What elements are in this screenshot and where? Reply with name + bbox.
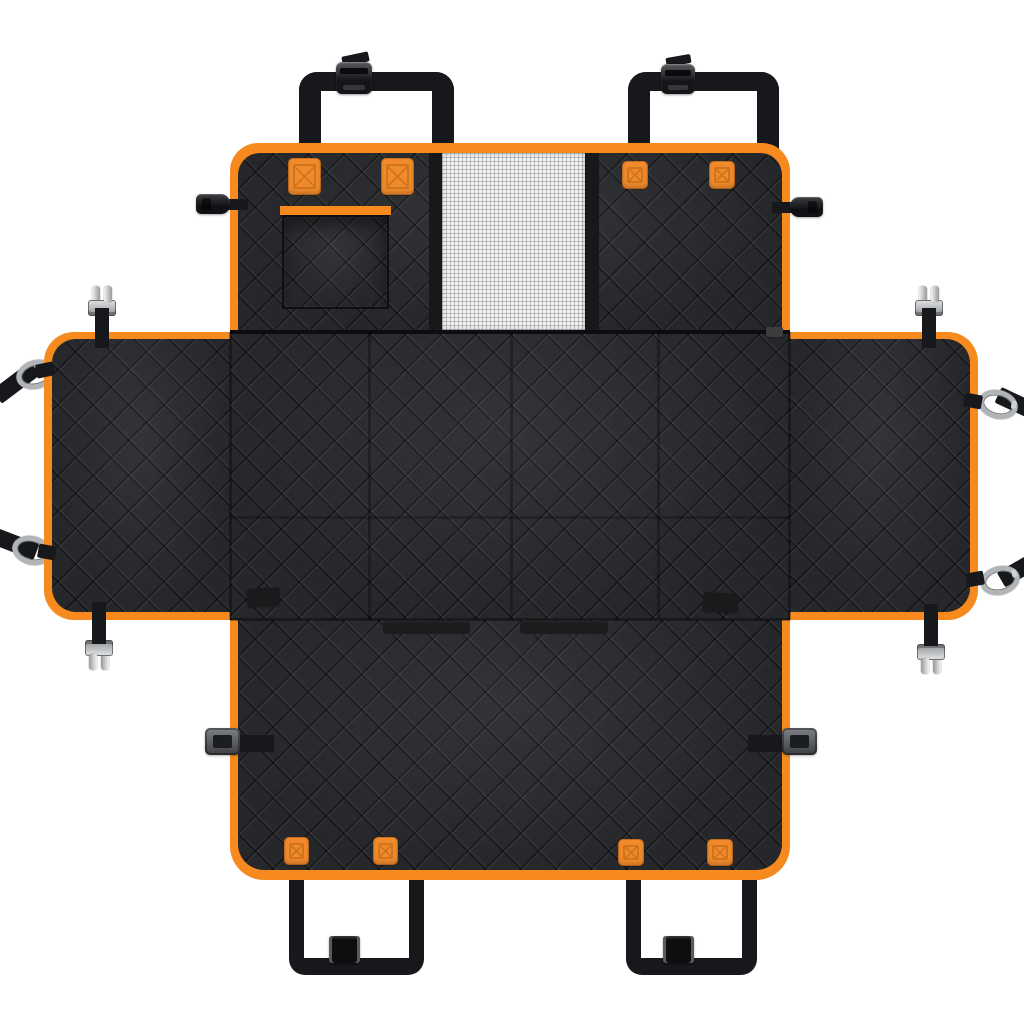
- flap-crease: [229, 332, 232, 620]
- orange-tab: [373, 837, 398, 865]
- zipper-slider: [766, 327, 783, 337]
- clip-strap-right: [748, 735, 786, 752]
- pocket-trim: [280, 206, 391, 215]
- flap-crease: [788, 332, 791, 620]
- front-panel: [230, 620, 790, 880]
- plastic-clip-left: [205, 728, 240, 755]
- orange-tab: [284, 837, 309, 865]
- fold-seam: [510, 332, 513, 620]
- front-panel-fabric: [238, 620, 782, 870]
- side-release-buckle-top-right: [661, 64, 695, 94]
- side-flap-right: [790, 332, 978, 620]
- metal-clip-bottom-right: [917, 644, 945, 674]
- fold-seam: [657, 332, 660, 620]
- velcro-strip: [520, 621, 608, 634]
- metal-clip-bottom-left: [85, 640, 113, 670]
- metal-clip-strap: [92, 602, 106, 644]
- side-release-buckle-edge-right: [790, 197, 823, 217]
- mesh-border-right: [585, 153, 599, 330]
- carabiner-edge-tab: [963, 393, 983, 410]
- metal-clip-base: [917, 644, 945, 660]
- side-flap-left: [44, 332, 230, 620]
- slide-adjuster-bottom-right: [663, 936, 694, 963]
- orange-tab: [381, 158, 414, 195]
- orange-tab: [288, 158, 321, 195]
- orange-tab: [622, 161, 648, 189]
- metal-clip-strap: [922, 308, 936, 348]
- zipper-pull: [771, 337, 779, 344]
- velcro-strip: [383, 621, 470, 634]
- metal-clip-strap: [924, 604, 938, 646]
- clip-strap-left: [236, 735, 274, 752]
- seam-tab: [247, 587, 281, 607]
- fold-seam: [368, 332, 371, 620]
- orange-tab: [707, 839, 733, 866]
- orange-tab: [618, 839, 644, 866]
- product-photo-stage: [0, 0, 1024, 1024]
- seam-tab: [703, 592, 739, 613]
- metal-clip-strap: [95, 308, 109, 348]
- carabiner-hook-upper-right: [975, 386, 1021, 424]
- side-flap-right-fabric: [790, 339, 970, 612]
- mesh-window: [442, 153, 585, 330]
- carabiner-edge-tab: [37, 544, 57, 561]
- slide-adjuster-bottom-left: [329, 936, 360, 963]
- fold-seam-horizontal: [230, 516, 790, 519]
- storage-pocket: [282, 215, 389, 309]
- mesh-border-left: [429, 153, 442, 330]
- side-release-buckle-edge-left: [196, 194, 230, 214]
- plastic-clip-right: [782, 728, 817, 755]
- side-release-buckle-top-left: [336, 62, 372, 94]
- side-flap-left-fabric: [52, 339, 230, 612]
- orange-tab: [709, 161, 735, 189]
- front-seam: [230, 618, 790, 621]
